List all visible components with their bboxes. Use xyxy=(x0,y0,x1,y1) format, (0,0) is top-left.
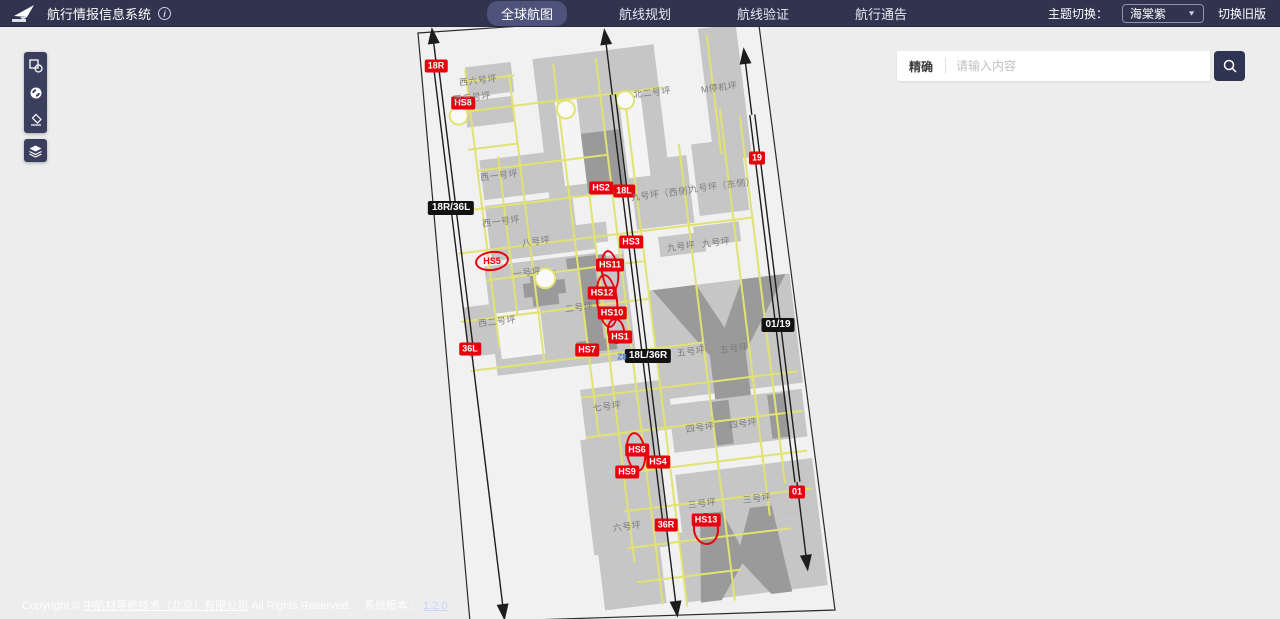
copyright-prefix: Copyright © xyxy=(22,600,83,612)
tab-global-chart[interactable]: 全球航图 xyxy=(487,1,567,26)
info-icon[interactable]: i xyxy=(158,7,171,20)
search-input[interactable] xyxy=(946,59,1210,73)
map-marker-hs13[interactable]: HS13 xyxy=(692,514,721,527)
theme-select-value: 海棠紫 xyxy=(1130,5,1166,22)
map-marker-hs10[interactable]: HS10 xyxy=(598,307,627,320)
runway-designator-label: 01/19 xyxy=(761,318,794,332)
map-marker-hs1[interactable]: HS1 xyxy=(608,331,632,344)
layers-button[interactable] xyxy=(24,139,47,162)
map-marker-hs2[interactable]: HS2 xyxy=(589,182,613,195)
locate-icon xyxy=(29,86,43,100)
map-marker-hs6[interactable]: HS6 xyxy=(625,444,649,457)
footer: Copyright © 中航材导航技术（北京）有限公司 All Rights R… xyxy=(22,597,448,613)
map-search: 精确 xyxy=(897,51,1245,81)
eraser-button[interactable] xyxy=(24,106,47,133)
map-marker-19[interactable]: 19 xyxy=(749,152,765,165)
layers-toolbox xyxy=(24,139,47,162)
map-marker-hs7[interactable]: HS7 xyxy=(575,344,599,357)
legacy-version-link[interactable]: 切换旧版 xyxy=(1218,5,1266,22)
company-link[interactable]: 中航材导航技术（北京）有限公司 xyxy=(83,600,248,612)
copyright-suffix: All Rights Reserved. xyxy=(248,600,351,612)
draw-shapes-button[interactable] xyxy=(24,52,47,79)
theme-select[interactable]: 海棠紫 ▼ xyxy=(1122,4,1204,23)
main-menu: 全球航图 航线规划 航线验证 航行通告 xyxy=(360,1,1048,26)
tab-route-planning[interactable]: 航线规划 xyxy=(605,1,685,26)
runway-designator-label: 18L/36R xyxy=(625,349,671,363)
map-marker-36l[interactable]: 36L xyxy=(459,343,481,356)
map-marker-18r[interactable]: 18R xyxy=(425,60,448,73)
map-canvas[interactable]: 18RHS819HS218LHS3HS11HS12HS10HS136LHS7HS… xyxy=(0,0,1280,619)
version-label: 系统版本： xyxy=(364,600,419,612)
map-marker-36r[interactable]: 36R xyxy=(655,519,678,532)
map-marker-hs3[interactable]: HS3 xyxy=(619,236,643,249)
map-marker-hs12[interactable]: HS12 xyxy=(588,287,617,300)
layers-icon xyxy=(28,144,43,158)
map-marker-hs11[interactable]: HS11 xyxy=(596,259,624,272)
draw-shapes-icon xyxy=(29,59,43,73)
runway-designator-label: 18R/36L xyxy=(428,201,474,215)
search-mode-button[interactable]: 精确 xyxy=(897,58,945,75)
tab-notam[interactable]: 航行通告 xyxy=(841,1,921,26)
chevron-down-icon: ▼ xyxy=(1187,9,1196,17)
top-navbar: 航行情报信息系统 i 全球航图 航线规划 航线验证 航行通告 主题切换： 海棠紫… xyxy=(0,0,1280,27)
map-toolbox xyxy=(24,52,47,133)
tab-route-validation[interactable]: 航线验证 xyxy=(723,1,803,26)
app-logo-icon xyxy=(10,2,40,24)
map-marker-hs4[interactable]: HS4 xyxy=(646,456,670,469)
eraser-icon xyxy=(29,113,43,127)
map-marker-01[interactable]: 01 xyxy=(789,486,805,499)
taxiway-label: Z8 xyxy=(617,353,626,362)
theme-switch-label: 主题切换： xyxy=(1048,5,1108,22)
map-marker-hs5[interactable]: HS5 xyxy=(483,256,501,266)
search-button[interactable] xyxy=(1214,51,1245,81)
search-icon xyxy=(1222,58,1238,74)
map-marker-hs9[interactable]: HS9 xyxy=(615,466,639,479)
app-title: 航行情报信息系统 xyxy=(47,4,151,23)
locate-button[interactable] xyxy=(24,79,47,106)
version-link[interactable]: 1.2.0 xyxy=(423,600,447,612)
